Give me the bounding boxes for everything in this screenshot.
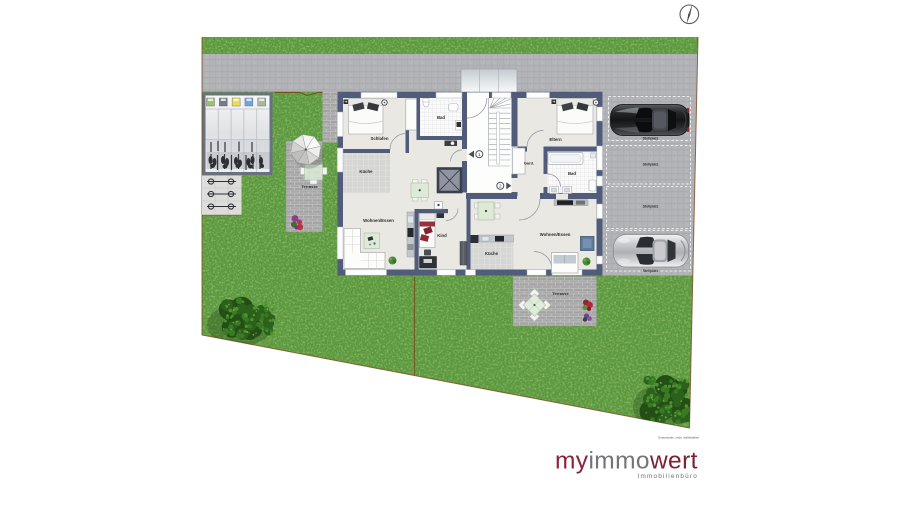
svg-text:Küche: Küche	[359, 169, 373, 174]
svg-text:Gard.: Gard.	[524, 161, 534, 166]
svg-text:Kind: Kind	[437, 233, 447, 238]
svg-text:Bad: Bad	[437, 115, 445, 120]
svg-text:Wohnen/Essen: Wohnen/Essen	[540, 232, 571, 237]
svg-text:Stellplatz: Stellplatz	[643, 205, 659, 209]
svg-text:1: 1	[478, 152, 481, 157]
svg-text:Stellplatz: Stellplatz	[643, 163, 659, 167]
svg-text:Schlafen: Schlafen	[371, 136, 389, 141]
svg-text:Eltern: Eltern	[549, 137, 562, 142]
svg-text:Immobilienbüro: Immobilienbüro	[638, 473, 699, 480]
svg-text:Terrasse: Terrasse	[552, 291, 569, 296]
svg-text:Terrasse: Terrasse	[301, 184, 318, 189]
svg-text:2: 2	[499, 184, 502, 189]
svg-text:Bad: Bad	[568, 171, 576, 176]
svg-text:Stellplatz: Stellplatz	[643, 269, 659, 273]
svg-text:Wohnen/Essen: Wohnen/Essen	[363, 218, 394, 223]
svg-text:Exposeplan, nicht maßstäblich: Exposeplan, nicht maßstäblich	[658, 436, 699, 440]
svg-text:myimmowert: myimmowert	[555, 448, 698, 475]
svg-text:Küche: Küche	[485, 251, 499, 256]
svg-text:Stellplatz: Stellplatz	[643, 137, 659, 141]
